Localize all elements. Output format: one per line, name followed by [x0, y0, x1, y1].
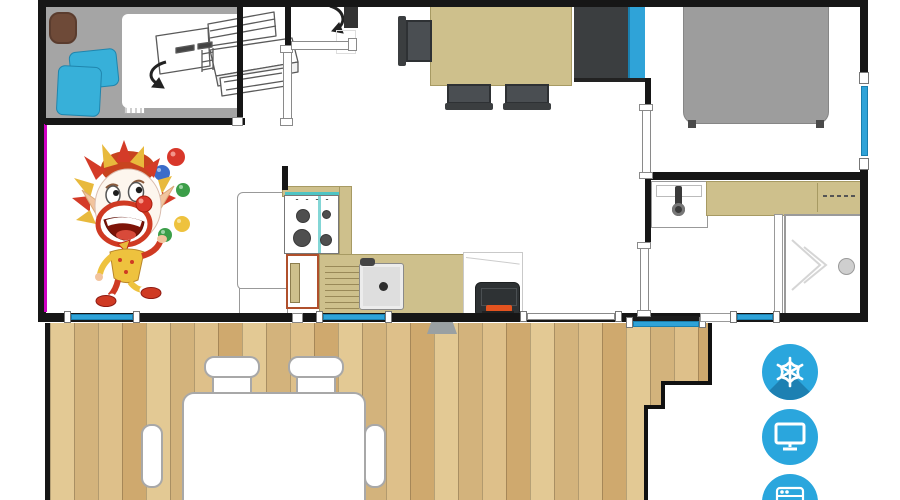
- dining-chair: [447, 84, 491, 104]
- patio-chair-back: [204, 356, 260, 378]
- wall-cabinet: [344, 7, 358, 28]
- window: [316, 311, 392, 323]
- door-hardware: [292, 313, 303, 323]
- window-cap: [385, 311, 392, 323]
- bunk-bed-sketch: [116, 2, 356, 114]
- sink: [359, 263, 404, 310]
- clown-illustration: [66, 140, 196, 310]
- bedroom-window: [858, 72, 870, 170]
- sink-tap: [360, 258, 375, 266]
- window-glass: [737, 314, 773, 320]
- door-hinge: [637, 242, 651, 249]
- door-hinge: [639, 172, 653, 179]
- window-cap: [64, 311, 71, 323]
- bed-foot: [688, 120, 696, 128]
- window-cap: [859, 158, 869, 170]
- wall-bathroom-top: [645, 172, 868, 180]
- burner: [296, 209, 310, 223]
- shower-spray-marks: [790, 238, 840, 296]
- kitchen-counter: [319, 254, 466, 316]
- patio-table: [182, 392, 366, 500]
- wardrobe-base: [574, 78, 645, 82]
- shower-drain: [838, 258, 855, 275]
- burner: [322, 210, 331, 219]
- door-hinge: [348, 38, 357, 51]
- shower: [784, 214, 862, 316]
- window-glass: [71, 314, 133, 320]
- gas-cooktop: [284, 195, 339, 254]
- window-glass: [633, 321, 699, 327]
- bedside-rug: [49, 12, 77, 44]
- washbasin: [651, 181, 708, 228]
- wall-right: [860, 0, 868, 76]
- wall-bedroom1: [45, 118, 245, 125]
- dining-chair: [398, 16, 406, 66]
- dining-chair: [406, 20, 432, 62]
- bathroom-window: [730, 311, 780, 323]
- stove-frame: [339, 186, 352, 257]
- burner: [320, 234, 332, 246]
- door-step: [427, 322, 457, 334]
- patio-chair-back: [141, 424, 163, 488]
- interior-door: [283, 50, 292, 120]
- door-hardware: [232, 117, 243, 126]
- door-hinge: [280, 118, 293, 126]
- double-bed: [683, 5, 829, 124]
- dining-chair-back: [445, 103, 493, 110]
- wall-left: [38, 0, 46, 124]
- window: [626, 316, 706, 329]
- wall-top: [45, 0, 868, 7]
- window-cap: [730, 311, 737, 323]
- wall-bathroom: [645, 172, 651, 249]
- window-glass: [323, 314, 385, 320]
- wall-accent-stripe: [44, 124, 47, 312]
- window-cap: [773, 311, 780, 323]
- air-conditioning-icon: [762, 344, 818, 400]
- tv-glyph: [773, 421, 807, 453]
- alcove-line: [466, 257, 520, 265]
- dining-table: [430, 5, 572, 86]
- door-hinge: [637, 310, 651, 317]
- wall-right: [860, 166, 868, 322]
- kitchen-low-cabinet: [239, 288, 288, 315]
- dining-chair: [505, 84, 549, 104]
- dining-chair-back: [503, 103, 551, 110]
- door-glass: [527, 313, 615, 320]
- cabinet-door: [290, 263, 300, 303]
- cooktop-trim: [285, 192, 339, 195]
- heater-window: [481, 288, 517, 306]
- sliding-patio-door: [520, 311, 622, 322]
- window-cap: [626, 317, 633, 328]
- fridge: [237, 192, 289, 290]
- shower-door: [774, 214, 783, 316]
- patio-chair-back: [288, 356, 344, 378]
- window-cap: [133, 311, 140, 323]
- wardrobe: [574, 5, 630, 80]
- sink-drain: [379, 282, 388, 291]
- bedroom-door: [642, 108, 651, 174]
- kitchen-cabinet: [286, 254, 319, 309]
- floor-plan: [0, 0, 900, 500]
- window-cap: [859, 72, 869, 84]
- bathroom-door: [640, 246, 649, 312]
- stove-heater: [475, 282, 520, 314]
- drawer-handle: [823, 195, 857, 197]
- window-sill: [700, 313, 734, 322]
- blue-cushion: [56, 65, 103, 117]
- door-hinge: [639, 104, 653, 111]
- wall-interior: [237, 5, 243, 122]
- patio-chair-back: [364, 424, 386, 488]
- tv-icon: [762, 409, 818, 465]
- dishwasher-glyph: [773, 486, 807, 500]
- door-cap: [615, 311, 622, 322]
- drainboard: [325, 265, 359, 309]
- bed-foot: [816, 120, 824, 128]
- burner: [293, 229, 311, 247]
- window: [64, 311, 140, 323]
- window-cap: [316, 311, 323, 323]
- wall-kitchen-stub: [282, 166, 288, 190]
- interior-door: [291, 41, 353, 50]
- snowflake-icon: [774, 356, 806, 388]
- faucet-knob: [672, 203, 685, 216]
- cooktop-trim: [318, 196, 321, 253]
- counter-divider: [817, 183, 818, 212]
- window-glass: [861, 86, 868, 156]
- wall-interior: [285, 0, 291, 46]
- bathroom-counter: [706, 181, 862, 216]
- cooktop-knobs: [290, 196, 330, 201]
- door-cap: [520, 311, 527, 322]
- wardrobe-sliding-door: [628, 5, 645, 80]
